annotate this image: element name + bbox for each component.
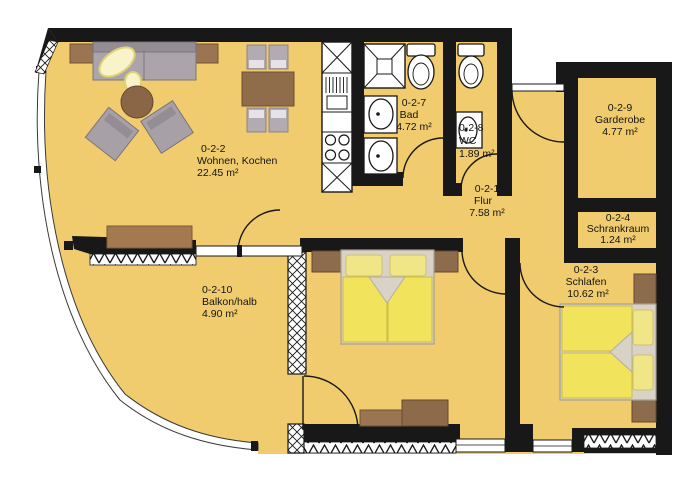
wall-pillar-sw bbox=[505, 424, 533, 452]
sink-drainer-icon bbox=[326, 77, 347, 93]
double-bed bbox=[341, 250, 434, 344]
dining-table bbox=[242, 72, 294, 106]
wall-top bbox=[48, 28, 500, 42]
dresser bbox=[360, 410, 402, 426]
nightstand bbox=[432, 251, 458, 272]
glazing-tick bbox=[64, 241, 73, 250]
pillow bbox=[390, 255, 426, 276]
room-area: 4.77 m² bbox=[602, 126, 638, 138]
toilet-bad-icon bbox=[407, 44, 435, 89]
dresser bbox=[402, 400, 448, 426]
wall-garderobe-top bbox=[556, 62, 672, 78]
room-name: Balkon/halb bbox=[202, 296, 257, 308]
wall-schlafen-bottom-edge bbox=[584, 448, 656, 453]
room-area: 10.62 m² bbox=[567, 288, 609, 300]
room-id: 0-2-8 bbox=[459, 122, 484, 134]
floor-plan-canvas: 0-2-2 Wohnen, Kochen 22.45 m² 0-2-7 Bad … bbox=[0, 0, 700, 500]
wall-bedroom-bottom bbox=[292, 424, 460, 442]
wall-pillar-se bbox=[572, 428, 584, 452]
side-table bbox=[196, 44, 218, 63]
room-id: 0-2-1 bbox=[475, 183, 500, 195]
washbasin-icon bbox=[364, 96, 397, 133]
glazing-tick bbox=[251, 441, 258, 451]
kitchen-counter bbox=[322, 42, 352, 192]
room-name: Garderobe bbox=[595, 114, 645, 126]
floor-plan: 0-2-2 Wohnen, Kochen 22.45 m² 0-2-7 Bad … bbox=[0, 0, 700, 500]
wall-schlafen-bottom bbox=[584, 428, 656, 435]
room-area: 22.45 m² bbox=[197, 167, 239, 179]
entry-threshold bbox=[512, 84, 564, 91]
wall-bedroom-schlafen bbox=[505, 238, 520, 452]
nightstand bbox=[632, 400, 656, 422]
room-area: 1.24 m² bbox=[600, 234, 636, 246]
room-id: 0-2-7 bbox=[402, 97, 427, 109]
wall-schlafen-top bbox=[564, 248, 672, 263]
shower-icon bbox=[364, 44, 405, 88]
wall-living-balcony-insulation bbox=[90, 254, 196, 265]
room-id: 0-2-9 bbox=[608, 102, 633, 114]
room-id: 0-2-2 bbox=[201, 143, 226, 155]
room-name: WC bbox=[459, 135, 477, 147]
glazing-tick bbox=[34, 166, 41, 173]
pillow bbox=[633, 310, 653, 345]
wall-bath-wc bbox=[443, 42, 456, 188]
wall-bedroom-bottom-insulation bbox=[292, 442, 456, 453]
pillow bbox=[633, 355, 653, 390]
room-id: 0-2-10 bbox=[202, 284, 233, 296]
room-id: 0-2-3 bbox=[574, 264, 599, 276]
wall-garderobe-left bbox=[564, 78, 578, 263]
nightstand bbox=[634, 274, 656, 304]
room-area: 4.72 m² bbox=[396, 121, 432, 133]
room-name: Schlafen bbox=[566, 276, 607, 288]
room-area: 7.58 m² bbox=[469, 207, 505, 219]
room-area: 1.89 m² bbox=[459, 148, 495, 160]
wall-garderobe-schrankraum bbox=[564, 198, 658, 212]
pillow bbox=[346, 255, 382, 276]
wall-entry-column bbox=[497, 28, 512, 196]
sideboard bbox=[107, 226, 192, 248]
washbasin-icon bbox=[364, 138, 397, 174]
balcony-glass-door bbox=[196, 246, 302, 256]
room-area: 4.90 m² bbox=[202, 308, 238, 320]
double-bed bbox=[560, 304, 656, 400]
bedroom-window bbox=[456, 439, 505, 452]
room-name: Bad bbox=[400, 109, 419, 121]
toilet-wc-icon bbox=[458, 44, 484, 88]
room-name: Flur bbox=[474, 195, 493, 207]
wall-wc-bottom bbox=[443, 183, 462, 196]
wall-schlafen-bottom-insulation bbox=[584, 435, 656, 448]
room-name: Wohnen, Kochen bbox=[197, 155, 278, 167]
coffee-table bbox=[121, 86, 153, 118]
side-table bbox=[70, 44, 93, 63]
nightstand bbox=[312, 251, 341, 272]
wall-kitchen-bath bbox=[352, 42, 364, 186]
